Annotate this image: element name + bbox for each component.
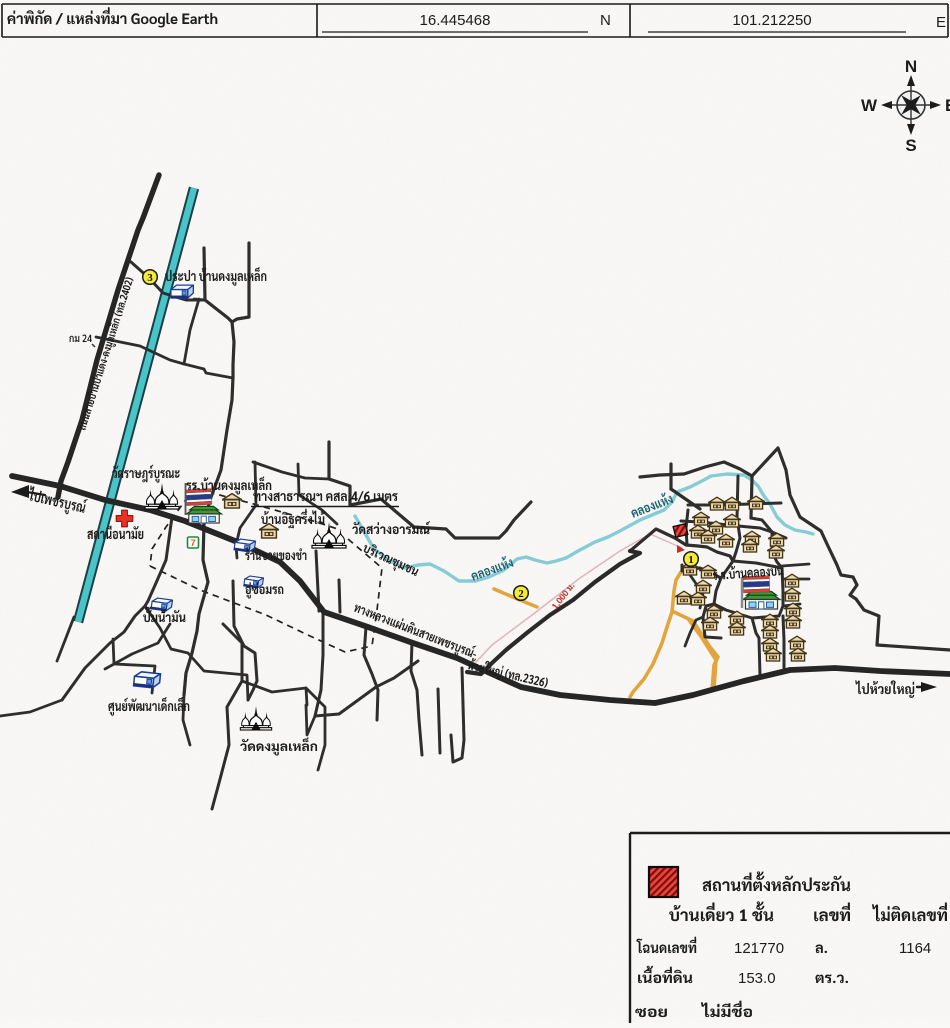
svg-text:N: N (905, 57, 917, 76)
svg-text:1164: 1164 (899, 940, 931, 957)
svg-text:7: 7 (190, 538, 195, 549)
svg-text:101.212250: 101.212250 (732, 12, 811, 29)
svg-text:E: E (945, 96, 950, 115)
svg-text:153.0: 153.0 (738, 970, 776, 987)
svg-text:W: W (861, 96, 878, 115)
svg-text:E: E (936, 14, 946, 31)
svg-text:S: S (905, 136, 916, 155)
svg-text:1: 1 (688, 554, 694, 566)
svg-text:121770: 121770 (734, 940, 784, 957)
svg-text:3: 3 (147, 272, 153, 284)
svg-text:N: N (600, 12, 611, 29)
svg-text:2: 2 (518, 588, 524, 600)
svg-text:16.445468: 16.445468 (420, 12, 491, 29)
